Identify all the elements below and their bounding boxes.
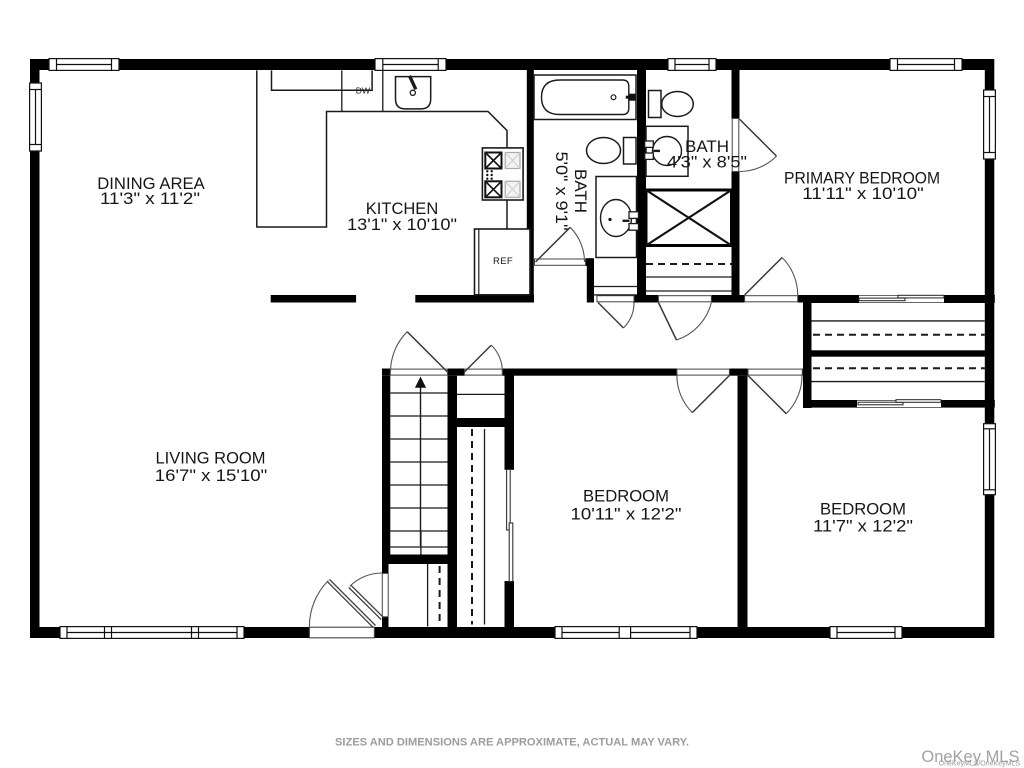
svg-text:OneKeyMLS/OneKeyMLS: OneKeyMLS/OneKeyMLS xyxy=(939,761,1021,768)
svg-text:13'1" x 10'10": 13'1" x 10'10" xyxy=(347,215,457,234)
svg-text:DW: DW xyxy=(356,86,371,96)
svg-text:10'11" x 12'2": 10'11" x 12'2" xyxy=(571,505,682,524)
svg-text:5'0" x 9'1": 5'0" x 9'1" xyxy=(552,152,571,231)
svg-text:BEDROOM: BEDROOM xyxy=(583,487,669,506)
svg-text:4'3" x 8'5": 4'3" x 8'5" xyxy=(667,153,747,172)
svg-text:LIVING ROOM: LIVING ROOM xyxy=(156,449,266,468)
svg-text:11'7" x 12'2": 11'7" x 12'2" xyxy=(813,517,913,536)
svg-text:11'11" x 10'10": 11'11" x 10'10" xyxy=(802,184,924,203)
svg-text:REF: REF xyxy=(493,256,513,267)
svg-text:BATH: BATH xyxy=(571,169,590,213)
svg-text:SIZES AND DIMENSIONS ARE APPRO: SIZES AND DIMENSIONS ARE APPROXIMATE, AC… xyxy=(335,737,689,749)
svg-text:11'3" x 11'2": 11'3" x 11'2" xyxy=(100,189,200,208)
svg-text:16'7" x 15'10": 16'7" x 15'10" xyxy=(155,466,268,485)
